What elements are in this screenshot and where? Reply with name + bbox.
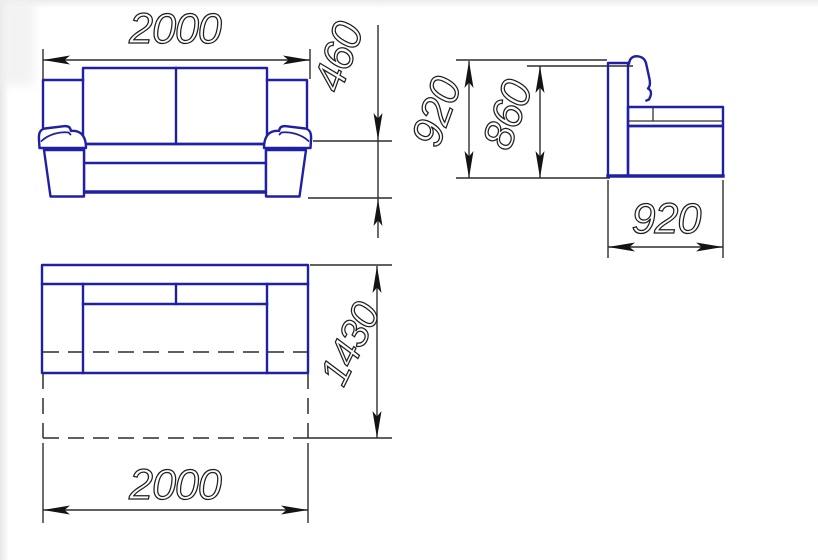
dim-depth: 920	[608, 180, 723, 258]
dim-label-overall-height: 920	[403, 71, 472, 153]
drawing-canvas: 2000 460	[0, 0, 818, 560]
front-view: 2000 460	[39, 5, 392, 238]
side-seat-body	[628, 126, 723, 176]
side-view: 920 860 920	[403, 56, 723, 258]
dim-label-front-width: 2000	[128, 5, 222, 53]
dim-seat-height: 460	[305, 16, 392, 238]
sofa-dimension-drawing: 2000 460	[0, 0, 818, 560]
armrest-lower	[266, 150, 306, 197]
front-left-armrest	[39, 80, 86, 197]
dim-label-depth: 920	[632, 195, 702, 243]
dim-plan-width: 2000	[43, 443, 308, 523]
armrest-upper	[43, 80, 83, 131]
armrest-upper	[267, 80, 307, 131]
dim-backrest-height: 860	[474, 66, 545, 178]
dim-label-backrest-height: 860	[474, 74, 543, 156]
dim-label-seat-height: 460	[305, 16, 374, 98]
front-right-armrest	[264, 80, 311, 197]
dim-overall-height: 920	[403, 61, 474, 178]
dim-label-plan-width: 2000	[128, 461, 222, 509]
armrest-lower	[44, 150, 84, 197]
dim-unfolded-depth: 1430	[308, 265, 392, 438]
side-armrest	[628, 107, 723, 126]
side-back-pillow	[629, 56, 651, 100]
side-backrest	[608, 63, 628, 176]
top-view: 1430 2000	[42, 265, 392, 523]
front-seat-base	[84, 144, 266, 192]
